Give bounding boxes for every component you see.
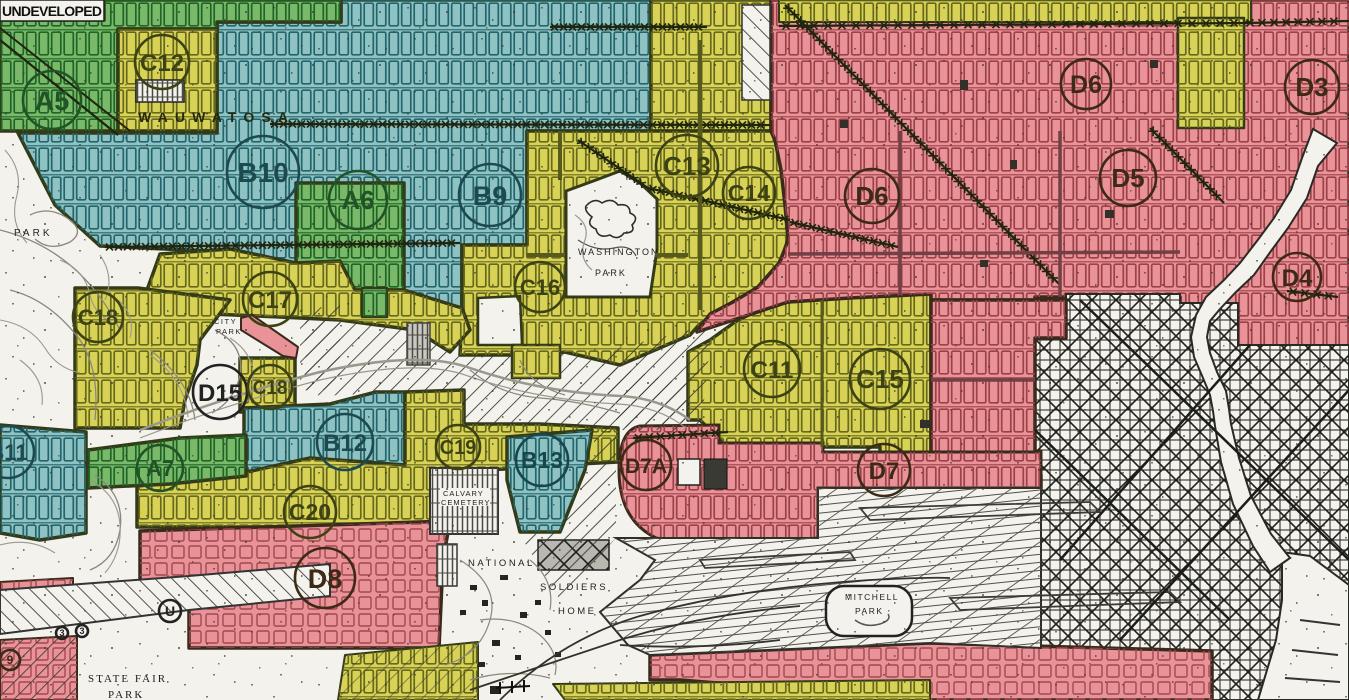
svg-text:3: 3 xyxy=(79,626,84,636)
svg-text:C15: C15 xyxy=(856,364,904,394)
svg-text:SOLDIERS: SOLDIERS xyxy=(540,582,608,593)
svg-text:B11: B11 xyxy=(0,440,28,465)
svg-text:D5: D5 xyxy=(1111,163,1144,193)
svg-text:D7A: D7A xyxy=(625,455,667,478)
svg-text:C13: C13 xyxy=(663,151,711,181)
svg-text:C18: C18 xyxy=(78,305,118,330)
svg-text:B10: B10 xyxy=(237,157,288,188)
svg-text:D8: D8 xyxy=(308,564,343,594)
svg-text:C16: C16 xyxy=(520,275,560,300)
svg-text:C19: C19 xyxy=(440,437,477,459)
svg-text:C18: C18 xyxy=(253,378,288,399)
svg-text:C12: C12 xyxy=(140,50,184,77)
svg-text:A5: A5 xyxy=(35,86,70,116)
svg-text:A7: A7 xyxy=(146,456,174,481)
svg-text:B12: B12 xyxy=(323,430,367,457)
svg-text:B9: B9 xyxy=(473,181,508,211)
svg-text:B13: B13 xyxy=(521,447,563,473)
svg-text:D4: D4 xyxy=(1282,265,1313,292)
svg-text:UNDEVELOPED: UNDEVELOPED xyxy=(2,3,102,19)
svg-text:STATE FAIR: STATE FAIR xyxy=(88,673,167,685)
svg-text:D3: D3 xyxy=(1295,72,1328,102)
svg-text:PARK: PARK xyxy=(216,327,242,336)
svg-text:D7: D7 xyxy=(869,458,900,485)
svg-text:A6: A6 xyxy=(341,185,374,215)
svg-text:NATIONAL: NATIONAL xyxy=(468,558,535,569)
svg-text:C14: C14 xyxy=(728,180,770,206)
svg-text:C20: C20 xyxy=(289,499,331,525)
svg-text:3: 3 xyxy=(59,628,64,638)
svg-text:CITY: CITY xyxy=(214,317,237,326)
svg-text:C17: C17 xyxy=(248,287,292,314)
svg-text:D6: D6 xyxy=(1070,71,1102,99)
svg-text:PARK: PARK xyxy=(14,228,53,239)
svg-text:HOME: HOME xyxy=(558,606,597,617)
svg-text:9: 9 xyxy=(7,653,14,667)
svg-text:WAUWATOSA: WAUWATOSA xyxy=(138,109,288,125)
svg-text:D6: D6 xyxy=(855,181,888,211)
svg-text:D15: D15 xyxy=(198,380,242,407)
svg-text:U: U xyxy=(165,603,175,619)
svg-text:C11: C11 xyxy=(751,357,794,384)
svg-text:PARK: PARK xyxy=(108,689,144,700)
